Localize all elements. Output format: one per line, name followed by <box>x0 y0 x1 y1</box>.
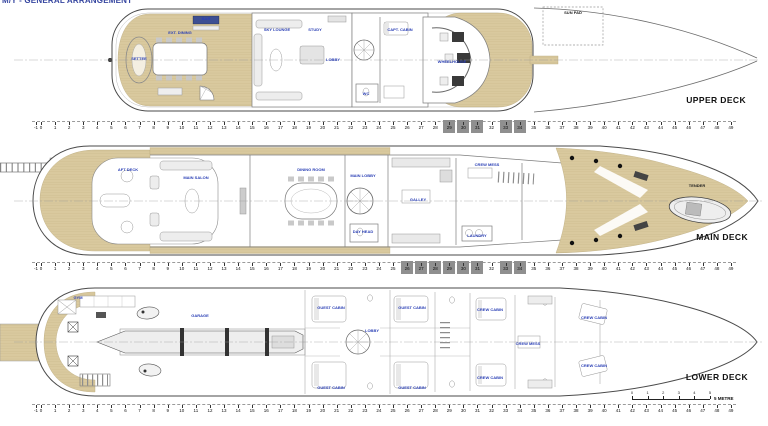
frame-number: 8 <box>152 408 155 413</box>
frame-number: 48 <box>714 125 719 130</box>
frame-number: 38 <box>574 266 579 271</box>
frame-number: 9 <box>166 125 169 130</box>
frame-number: 22 <box>348 266 353 271</box>
frame-number: 42 <box>630 125 635 130</box>
frame-number: 7 <box>138 266 141 271</box>
scale-unit-label: 5 METRE <box>714 396 734 401</box>
frame-number: 25 <box>390 125 395 130</box>
frame-number: 39 <box>588 408 593 413</box>
frame-number: 13 <box>222 125 227 130</box>
frame-number: 30 <box>461 125 466 130</box>
frame-number: 27 <box>419 408 424 413</box>
frame-number: 2 <box>68 125 71 130</box>
frame-number: 19 <box>306 125 311 130</box>
frame-number: 6 <box>124 408 127 413</box>
frame-number: 1 <box>54 266 57 271</box>
room-label: SKY LOUNGE <box>264 28 290 32</box>
frame-number: 44 <box>658 125 663 130</box>
frame-number: 7 <box>138 125 141 130</box>
room-label: GUEST CABIN <box>317 306 345 310</box>
frame-number: 14 <box>236 408 241 413</box>
frame-number: 46 <box>686 125 691 130</box>
room-label: CREW MESS <box>475 163 500 167</box>
ga-plan-canvas: BAREXT. DININGSETTEESKY LOUNGESTUDYLOBBY… <box>0 0 768 426</box>
frame-number: 23 <box>362 408 367 413</box>
frame-number: -1 <box>34 125 38 130</box>
room-label: TENDER <box>689 184 705 188</box>
frame-number: 18 <box>292 408 297 413</box>
frame-number: 38 <box>574 408 579 413</box>
frame-number: 35 <box>531 408 536 413</box>
scale-tick <box>694 396 695 399</box>
frame-number: -1 <box>34 408 38 413</box>
frame-number: 49 <box>728 408 733 413</box>
frame-number: 46 <box>686 266 691 271</box>
frame-number: 28 <box>433 266 438 271</box>
frame-number: 0 <box>40 408 43 413</box>
room-label: CREW MESS <box>516 342 541 346</box>
frame-number: 31 <box>475 125 480 130</box>
room-label: GARAGE <box>191 314 209 318</box>
frame-number: 6 <box>124 266 127 271</box>
frame-number: 2 <box>68 408 71 413</box>
frame-number: 23 <box>362 125 367 130</box>
frame-number: 21 <box>334 408 339 413</box>
frame-number: 20 <box>320 408 325 413</box>
frame-number: 31 <box>475 408 480 413</box>
room-label: WC <box>363 92 370 96</box>
frame-number: 3 <box>82 408 85 413</box>
frame-number: 28 <box>433 408 438 413</box>
room-label: DAY HEAD <box>353 230 373 234</box>
frame-number: -1 <box>34 266 38 271</box>
frame-number: 28 <box>433 125 438 130</box>
room-label: CAPT. CABIN <box>387 28 412 32</box>
frame-number: 26 <box>405 125 410 130</box>
frame-number: 17 <box>278 408 283 413</box>
frame-ruler-line <box>32 404 736 405</box>
room-label: LOBBY <box>326 58 340 62</box>
room-label: GUEST CABIN <box>317 386 345 390</box>
frame-number: 33 <box>503 266 508 271</box>
frame-number: 30 <box>461 408 466 413</box>
frame-number: 12 <box>207 408 212 413</box>
scale-tick <box>663 396 664 399</box>
frame-number: 0 <box>40 266 43 271</box>
frame-number: 10 <box>179 266 184 271</box>
frame-number: 47 <box>700 266 705 271</box>
frame-number: 34 <box>517 266 522 271</box>
frame-number: 27 <box>419 125 424 130</box>
frame-number: 15 <box>250 408 255 413</box>
scale-tick <box>679 396 680 399</box>
frame-number: 14 <box>236 125 241 130</box>
room-label: CREW CABIN <box>477 308 503 312</box>
frame-number: 34 <box>517 408 522 413</box>
scale-number: 1 <box>646 391 648 395</box>
scale-number: 3 <box>678 391 680 395</box>
room-label: STUDY <box>308 28 322 32</box>
frame-number: 9 <box>166 266 169 271</box>
drawing-title: M/Y - GENERAL ARRANGEMENT <box>2 0 132 5</box>
upper-deck-name: UPPER DECK <box>686 95 746 105</box>
frame-number: 45 <box>672 266 677 271</box>
scale-number: 2 <box>662 391 664 395</box>
room-label: DINING ROOM <box>297 168 325 172</box>
room-label: CREW CABIN <box>581 364 607 368</box>
frame-number: 29 <box>447 125 452 130</box>
frame-number: 39 <box>588 125 593 130</box>
frame-number: 10 <box>179 125 184 130</box>
frame-number: 13 <box>222 266 227 271</box>
frame-number: 20 <box>320 266 325 271</box>
room-label: LOBBY <box>365 329 379 333</box>
frame-number: 46 <box>686 408 691 413</box>
frame-number: 25 <box>390 266 395 271</box>
frame-number: 8 <box>152 125 155 130</box>
frame-number: 48 <box>714 408 719 413</box>
frame-number: 1 <box>54 125 57 130</box>
frame-number: 14 <box>236 266 241 271</box>
frame-number: 35 <box>531 125 536 130</box>
frame-number: 25 <box>390 408 395 413</box>
frame-number: 4 <box>96 408 99 413</box>
room-label: GALLEY <box>410 198 426 202</box>
frame-number: 34 <box>517 125 522 130</box>
frame-number: 48 <box>714 266 719 271</box>
frame-number: 16 <box>264 266 269 271</box>
frame-number: 47 <box>700 408 705 413</box>
frame-number: 2 <box>68 266 71 271</box>
frame-ruler-line <box>32 121 736 122</box>
frame-number: 16 <box>264 125 269 130</box>
frame-number: 13 <box>222 408 227 413</box>
frame-number: 30 <box>461 266 466 271</box>
scale-tick <box>710 396 711 399</box>
room-label: MAIN SALON <box>183 176 208 180</box>
room-label: GUEST CABIN <box>398 386 426 390</box>
scale-bar <box>632 399 710 400</box>
frame-number: 19 <box>306 266 311 271</box>
frame-number: 19 <box>306 408 311 413</box>
frame-number: 32 <box>489 125 494 130</box>
room-label: CREW CABIN <box>477 376 503 380</box>
frame-number: 22 <box>348 125 353 130</box>
frame-number: 33 <box>503 125 508 130</box>
frame-number: 29 <box>447 408 452 413</box>
frame-number: 36 <box>545 266 550 271</box>
frame-number: 43 <box>644 408 649 413</box>
frame-number: 43 <box>644 266 649 271</box>
frame-number: 29 <box>447 266 452 271</box>
annotation-layer: BAREXT. DININGSETTEESKY LOUNGESTUDYLOBBY… <box>0 0 768 426</box>
frame-number: 1 <box>54 408 57 413</box>
frame-number: 27 <box>419 266 424 271</box>
frame-number: 9 <box>166 408 169 413</box>
frame-number: 26 <box>405 408 410 413</box>
frame-number: 32 <box>489 266 494 271</box>
frame-number: 42 <box>630 266 635 271</box>
frame-number: 6 <box>124 125 127 130</box>
frame-number: 36 <box>545 408 550 413</box>
frame-number: 12 <box>207 266 212 271</box>
frame-number: 32 <box>489 408 494 413</box>
room-label: GUEST CABIN <box>398 306 426 310</box>
frame-number: 17 <box>278 266 283 271</box>
scale-number: 0 <box>631 391 633 395</box>
frame-number: 12 <box>207 125 212 130</box>
room-label: GYM <box>73 296 82 300</box>
lower-deck-name: LOWER DECK <box>686 372 748 382</box>
frame-number: 5 <box>110 266 113 271</box>
frame-number: 38 <box>574 125 579 130</box>
frame-number: 20 <box>320 125 325 130</box>
room-label: LAUNDRY <box>467 234 486 238</box>
frame-number: 23 <box>362 266 367 271</box>
frame-ruler-line <box>32 262 736 263</box>
frame-number: 43 <box>644 125 649 130</box>
frame-number: 10 <box>179 408 184 413</box>
frame-number: 45 <box>672 125 677 130</box>
frame-number: 24 <box>376 408 381 413</box>
frame-number: 0 <box>40 125 43 130</box>
frame-number: 41 <box>616 408 621 413</box>
room-label: EXT. DINING <box>168 31 192 35</box>
frame-number: 42 <box>630 408 635 413</box>
frame-number: 39 <box>588 266 593 271</box>
frame-number: 40 <box>602 266 607 271</box>
frame-number: 35 <box>531 266 536 271</box>
frame-number: 7 <box>138 408 141 413</box>
frame-number: 44 <box>658 266 663 271</box>
frame-number: 41 <box>616 125 621 130</box>
frame-number: 44 <box>658 408 663 413</box>
scale-number: 4 <box>693 391 695 395</box>
frame-number: 4 <box>96 125 99 130</box>
frame-number: 31 <box>475 266 480 271</box>
frame-number: 24 <box>376 266 381 271</box>
frame-number: 22 <box>348 408 353 413</box>
frame-number: 15 <box>250 266 255 271</box>
room-label: BAR <box>202 17 211 21</box>
frame-number: 37 <box>559 125 564 130</box>
frame-number: 24 <box>376 125 381 130</box>
frame-number: 49 <box>728 266 733 271</box>
frame-number: 15 <box>250 125 255 130</box>
frame-number: 21 <box>334 266 339 271</box>
frame-number: 26 <box>405 266 410 271</box>
main-deck-name: MAIN DECK <box>696 232 748 242</box>
frame-number: 8 <box>152 266 155 271</box>
frame-number: 11 <box>194 125 199 130</box>
frame-number: 47 <box>700 125 705 130</box>
frame-number: 11 <box>194 266 199 271</box>
frame-number: 36 <box>545 125 550 130</box>
room-label: MAIN LOBBY <box>350 174 375 178</box>
frame-number: 5 <box>110 408 113 413</box>
frame-number: 37 <box>559 408 564 413</box>
frame-number: 45 <box>672 408 677 413</box>
frame-number: 49 <box>728 125 733 130</box>
scale-tick <box>632 396 633 399</box>
scale-tick <box>648 396 649 399</box>
frame-number: 4 <box>96 266 99 271</box>
frame-number: 18 <box>292 125 297 130</box>
frame-number: 11 <box>194 408 199 413</box>
room-label: SUN PAD <box>564 11 582 15</box>
frame-number: 21 <box>334 125 339 130</box>
frame-number: 40 <box>602 408 607 413</box>
room-label: SETTEE <box>131 57 147 61</box>
frame-number: 17 <box>278 125 283 130</box>
room-label: AFT DECK <box>118 168 138 172</box>
frame-number: 41 <box>616 266 621 271</box>
frame-number: 16 <box>264 408 269 413</box>
frame-number: 3 <box>82 266 85 271</box>
frame-number: 18 <box>292 266 297 271</box>
frame-number: 33 <box>503 408 508 413</box>
frame-number: 37 <box>559 266 564 271</box>
frame-number: 3 <box>82 125 85 130</box>
frame-number: 40 <box>602 125 607 130</box>
scale-number: 5 <box>709 391 711 395</box>
frame-number: 5 <box>110 125 113 130</box>
room-label: WHEELHOUSE <box>438 60 467 64</box>
room-label: CREW CABIN <box>581 316 607 320</box>
